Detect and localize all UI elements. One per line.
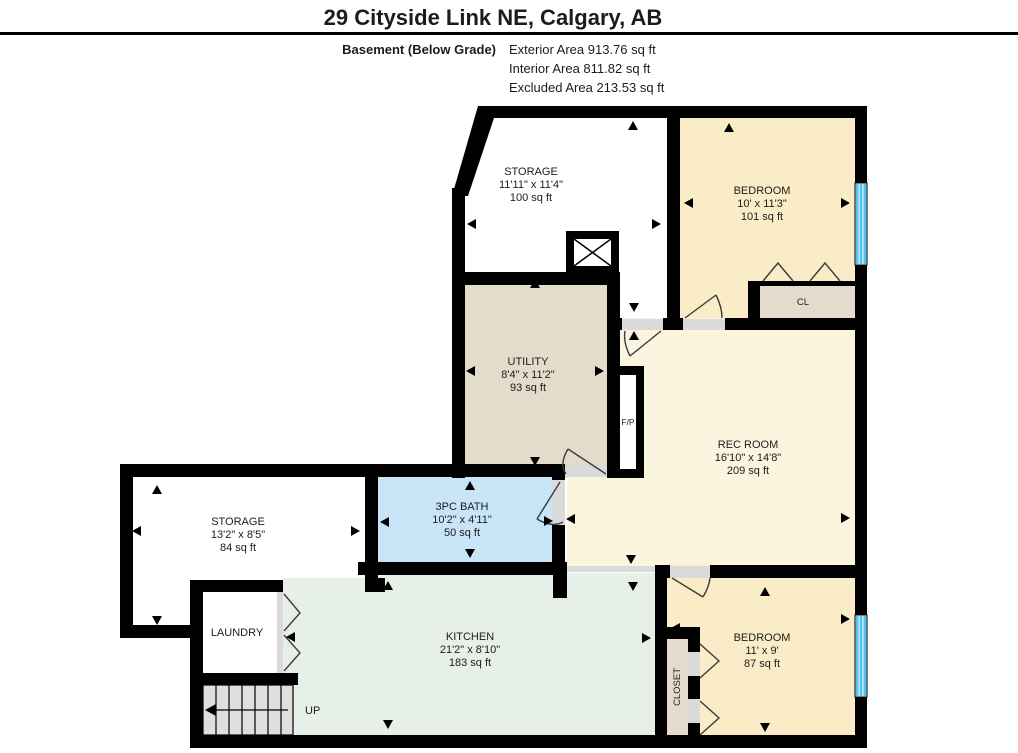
threshold <box>688 652 700 676</box>
floor-plan-svg: 29 Cityside Link NE, Calgary, AB Basemen… <box>0 0 1018 753</box>
wall <box>358 562 567 575</box>
room-label-kitchen-area: 183 sq ft <box>449 657 491 669</box>
threshold <box>277 592 283 673</box>
threshold <box>622 319 663 330</box>
measure-arrow <box>467 219 476 229</box>
window-glass <box>860 184 863 264</box>
support-post <box>566 231 619 274</box>
wall <box>607 318 622 330</box>
room-label-rec-area: 209 sq ft <box>727 465 769 477</box>
wall <box>190 580 283 592</box>
room-label-bedroom-bottom-dims: 11' x 9' <box>745 645 778 657</box>
room-label-bedroom-bottom-area: 87 sq ft <box>744 658 780 670</box>
stairs-up-label: UP <box>305 705 320 717</box>
wall <box>688 723 700 748</box>
room-label-storage-left-dims: 13'2" x 8'5" <box>211 529 265 541</box>
room-label-storage-top-dims: 11'11" x 11'4" <box>499 179 563 191</box>
wall <box>452 188 465 478</box>
wall <box>688 639 700 652</box>
room-label-utility-name: UTILITY <box>508 356 550 368</box>
header-divider <box>0 32 1018 35</box>
wall <box>120 464 133 638</box>
room-label-storage-left-name: STORAGE <box>211 516 265 528</box>
wall <box>190 735 867 748</box>
wall <box>725 318 867 330</box>
measure-arrow <box>152 616 162 625</box>
measure-arrow <box>132 526 141 536</box>
window-glass <box>856 616 859 696</box>
room-label-bedroom-bottom-name: BEDROOM <box>734 632 791 644</box>
wall <box>372 578 385 592</box>
room-label-utility-dims: 8'4" x 11'2" <box>501 369 554 381</box>
excluded-area-line: Excluded Area 213.53 sq ft <box>509 80 665 95</box>
measure-arrow <box>152 485 162 494</box>
closet-top-label: CL <box>797 297 809 308</box>
threshold <box>683 319 725 330</box>
threshold <box>688 699 700 723</box>
wall <box>760 281 855 286</box>
wall <box>855 106 867 185</box>
threshold <box>552 480 565 525</box>
room-label-bedroom-top-dims: 10' x 11'3" <box>737 198 787 210</box>
fireplace-label: F/P <box>621 417 635 427</box>
room-label-bath-area: 50 sq ft <box>444 527 480 539</box>
wall <box>120 464 565 477</box>
room-label-bedroom-top-name: BEDROOM <box>734 185 791 197</box>
wall <box>663 318 683 330</box>
wall <box>655 565 670 578</box>
wall <box>748 281 760 318</box>
wall <box>655 565 667 748</box>
wall <box>552 525 565 575</box>
window-glass <box>863 184 866 264</box>
measure-arrow <box>351 526 360 536</box>
room-label-storage-top-name: STORAGE <box>504 166 558 178</box>
fireplace: F/P <box>612 366 644 478</box>
wall <box>667 106 680 330</box>
room-label-rec-dims: 16'10" x 14'8" <box>715 452 782 464</box>
window-glass <box>856 184 859 264</box>
window-glass <box>860 616 863 696</box>
interior-area-line: Interior Area 811.82 sq ft <box>509 61 651 76</box>
wall <box>688 676 700 699</box>
measure-arrow <box>629 303 639 312</box>
room-label-bath-name: 3PC BATH <box>436 501 489 513</box>
page-title: 29 Cityside Link NE, Calgary, AB <box>324 5 663 30</box>
room-label-kitchen-dims: 21'2" x 8'10" <box>440 644 500 656</box>
room-label-laundry-name: LAUNDRY <box>211 627 264 639</box>
room-label-kitchen-name: KITCHEN <box>446 631 494 643</box>
room-label-rec-name: REC ROOM <box>718 439 779 451</box>
exterior-area-line: Exterior Area 913.76 sq ft <box>509 42 656 57</box>
room-label-bedroom-top-area: 101 sq ft <box>741 211 783 223</box>
wall <box>710 565 867 578</box>
window-glass <box>863 616 866 696</box>
wall <box>190 673 298 685</box>
room-label-storage-left-area: 84 sq ft <box>220 542 256 554</box>
floor-label: Basement (Below Grade) <box>342 42 496 57</box>
wall <box>190 580 203 748</box>
room-label-bath-dims: 10'2" x 4'11" <box>432 514 492 526</box>
room-label-storage-top-area: 100 sq ft <box>510 192 552 204</box>
closet-bottom-label: CLOSET <box>672 668 683 706</box>
floor-plan-page: 29 Cityside Link NE, Calgary, AB Basemen… <box>0 0 1018 753</box>
threshold <box>670 566 710 578</box>
room-label-utility-area: 93 sq ft <box>510 382 546 394</box>
wall <box>553 575 567 598</box>
threshold <box>567 566 655 572</box>
measure-arrow <box>628 121 638 130</box>
wall <box>855 263 867 615</box>
wall <box>452 106 498 196</box>
measure-arrow <box>652 219 661 229</box>
